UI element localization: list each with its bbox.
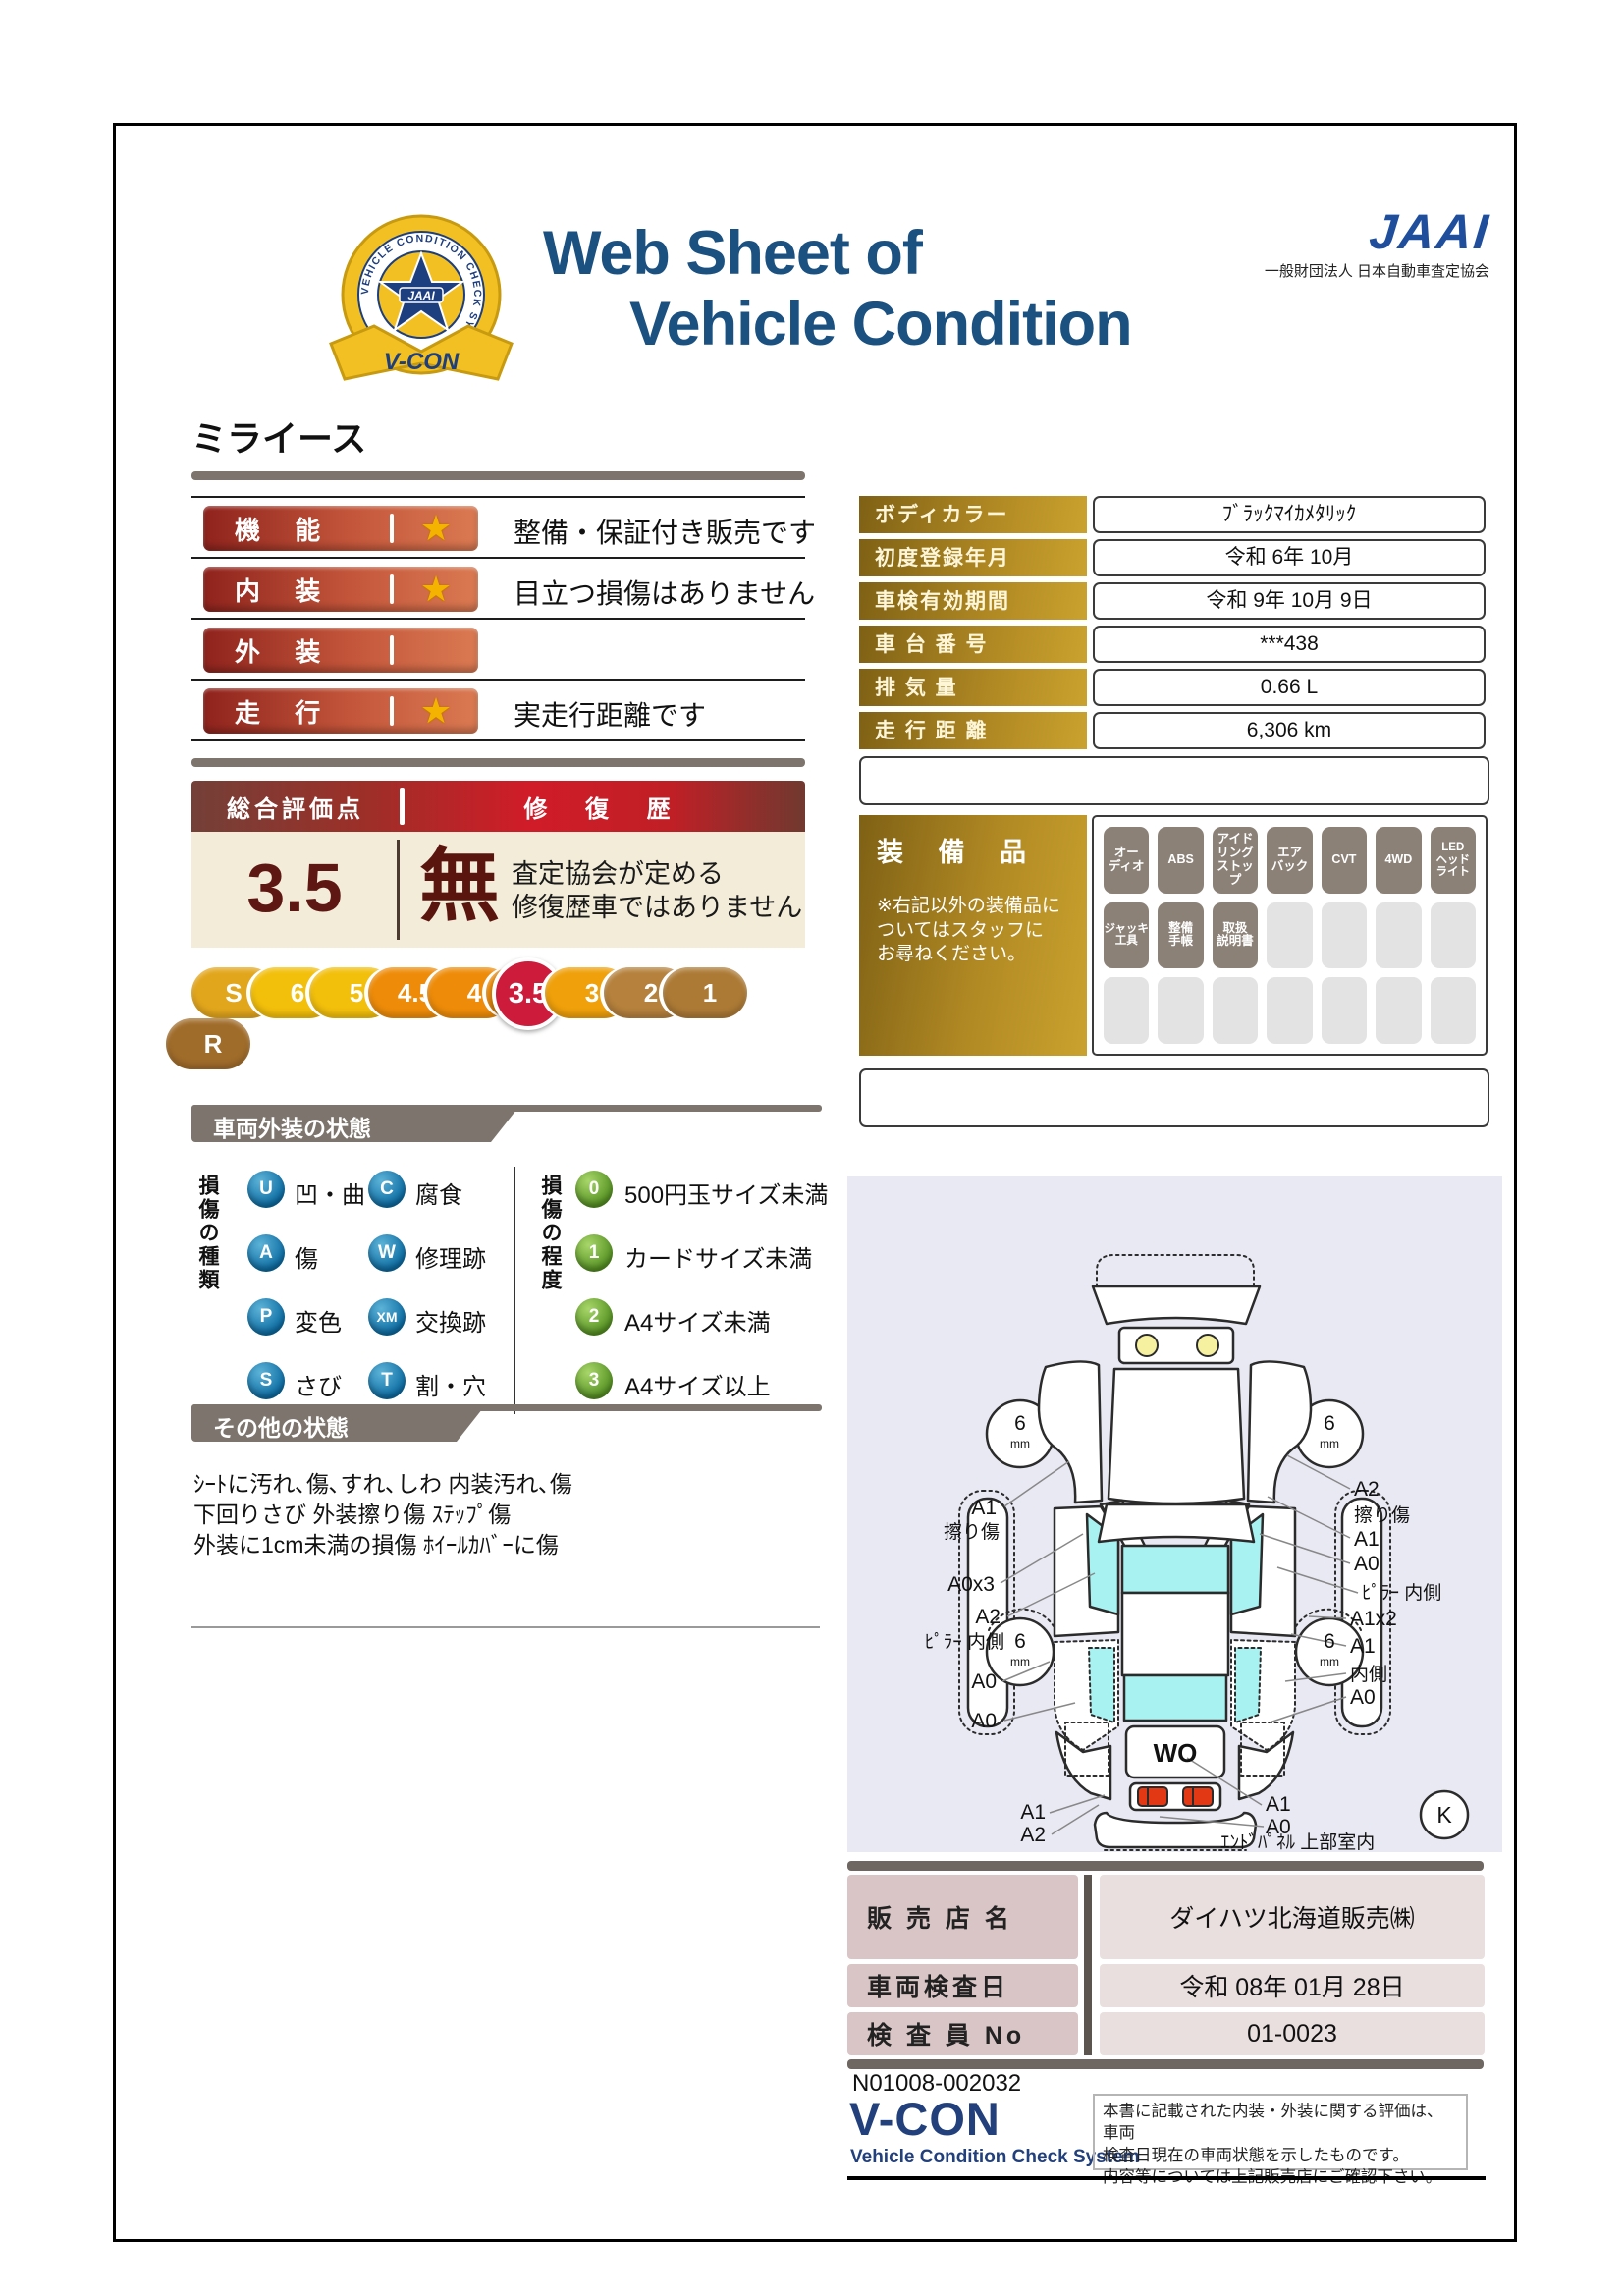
inspector-no-value: 01-0023 (1100, 2012, 1485, 2055)
equipment-badge-empty (1267, 977, 1312, 1044)
rating-label: 走 行 (203, 693, 390, 730)
damage-type-icon-a: A (247, 1234, 285, 1272)
damage-degree-label: A4サイズ以上 (624, 1367, 771, 1401)
spec-value: ***438 (1093, 626, 1486, 663)
legend-divider (514, 1167, 515, 1414)
vcon-logo: V-CON (849, 2092, 1001, 2146)
spec-label: ボディカラー (859, 496, 1087, 535)
equipment-badge-cvt: CVT (1322, 827, 1367, 894)
damage-degree-icon-0: 0 (575, 1171, 613, 1208)
scale-segment-label: 5 (340, 978, 363, 1009)
repair-history-title: 修 復 歴 (405, 790, 805, 824)
equipment-badge-airbag: エア バック (1267, 827, 1312, 894)
dealer-name-value: ダイハツ北海道販売㈱ (1100, 1875, 1485, 1959)
equipment-badge-empty (1213, 977, 1258, 1044)
equipment-badge-empty (1431, 902, 1476, 969)
diagram-bottom-caption: ｴﾝﾄﾞﾊﾟﾈﾙ 上部室内 (1220, 1831, 1375, 1852)
headlight-right-icon (1197, 1335, 1218, 1356)
rating-row-mileage: 走 行 ★ 実走行距離です (191, 679, 805, 741)
spec-empty-box (859, 756, 1489, 805)
rear-glass (1124, 1675, 1226, 1721)
damage-label: A1 (1354, 1528, 1380, 1551)
scale-segment: R (166, 1018, 250, 1069)
damage-label: 擦り傷 (944, 1521, 1000, 1543)
damage-label: A0 (1350, 1686, 1376, 1709)
title-line2: Vehicle Condition (543, 289, 1132, 359)
damage-type-icon-w: W (368, 1234, 406, 1272)
equipment-badge-empty (1322, 977, 1367, 1044)
spec-row-bodycolor: ボディカラー ﾌﾞﾗｯｸﾏｲｶﾒﾀﾘｯｸ (859, 496, 1488, 535)
damage-type-label: 交換跡 (415, 1303, 486, 1338)
headlight-left-icon (1136, 1335, 1158, 1356)
equipment-badge-empty (1104, 977, 1149, 1044)
other-condition-text: ｼｰﾄに汚れ､傷､すれ､しわ 内装汚れ､傷 下回りさび 外装擦り傷 ｽﾃｯﾌﾟ傷… (193, 1469, 572, 1560)
damage-type-label: さび (295, 1367, 342, 1401)
exterior-section-title: 車両外装の状態 (191, 1105, 520, 1142)
rating-row-interior: 内 装 ★ 目立つ損傷はありません (191, 557, 805, 620)
damage-type-label: 修理跡 (415, 1239, 486, 1274)
star-icon: ★ (394, 690, 478, 732)
equipment-note: ※右記以外の装備品に ついてはスタッフに お尋ねください。 (877, 895, 1087, 967)
equipment-badge-empty (1376, 902, 1421, 969)
damage-label: A0 (971, 1710, 997, 1732)
spec-row-first-registration: 初度登録年月 令和 6年 10月 (859, 539, 1488, 578)
star-icon: ★ (394, 569, 478, 610)
damage-type-axis: 損傷の種類 (192, 1175, 222, 1292)
badge-ribbon-text: V-CON (384, 349, 460, 375)
page-title: Web Sheet of Vehicle Condition (543, 218, 1132, 359)
star-icon: ★ (394, 508, 478, 549)
scale-segment-label: 1 (693, 978, 717, 1009)
damage-label: 擦り傷 (1354, 1504, 1410, 1526)
rating-label: 機 能 (203, 511, 390, 547)
equipment-title: 装 備 品 (877, 831, 1087, 869)
jaai-logo: JAAI (1200, 206, 1491, 257)
scale-segment-label: 6 (281, 978, 304, 1009)
damage-type-label: 傷 (295, 1239, 318, 1274)
footer-divider (847, 2176, 1486, 2180)
dealer-table-top-bar (847, 1861, 1484, 1871)
tread-depth-value: 6 (1324, 1630, 1335, 1653)
divider-bar-top (191, 471, 805, 480)
dealer-table-bottom-bar (847, 2059, 1484, 2069)
spec-row-chassis-number: 車 台 番 号 ***438 (859, 626, 1488, 665)
repair-status: 無 (419, 832, 500, 948)
damage-label: A1 (1020, 1801, 1046, 1824)
spec-value: 令和 9年 10月 9日 (1093, 582, 1486, 620)
damage-label: A2 (975, 1606, 1001, 1628)
badge-center-text: JAAI (407, 289, 435, 302)
equipment-badge-4wd: 4WD (1376, 827, 1421, 894)
rear-panel-code: WO (1154, 1738, 1198, 1768)
damage-type-label: 変色 (295, 1303, 342, 1338)
rating-bar: 内 装 ★ (203, 567, 478, 612)
rating-bottom-line (191, 739, 805, 741)
damage-type-label: 腐食 (415, 1175, 462, 1210)
scale-segment-label: 2 (634, 978, 658, 1009)
rating-bar: 走 行 ★ (203, 688, 478, 734)
scale-segment-label: S (225, 978, 242, 1009)
damage-degree-label: A4サイズ未満 (624, 1303, 771, 1338)
title-line1: Web Sheet of (543, 219, 922, 288)
spec-row-inspection-valid: 車検有効期間 令和 9年 10月 9日 (859, 582, 1488, 622)
damage-type-icon-c: C (368, 1171, 406, 1208)
damage-label: ﾋﾟﾗｰ 内側 (925, 1631, 1004, 1653)
inspection-date-value: 令和 08年 01月 28日 (1100, 1964, 1485, 2007)
tail-light-left-icon (1138, 1787, 1167, 1806)
spec-label: 車 台 番 号 (859, 626, 1087, 665)
tread-depth-unit: mm (1010, 1655, 1030, 1668)
repair-note: 査定協会が定める 修復歴車ではありません (512, 857, 802, 924)
tread-depth-value: 6 (1014, 1412, 1026, 1435)
score-scale: S 6 5 4.5 4 3.5 3 2 1 R (191, 967, 805, 1018)
equipment-badge-led: LED ヘッド ライト (1431, 827, 1476, 894)
equipment-badge-empty (1158, 977, 1203, 1044)
scale-segment: 1 (663, 967, 747, 1018)
equipment-badge-audio: オー ディオ (1104, 827, 1149, 894)
front-glass (1122, 1546, 1228, 1593)
damage-type-icon-xm: XM (368, 1298, 406, 1336)
other-section-title: その他の状態 (191, 1404, 486, 1442)
equipment-badge-empty (1431, 977, 1476, 1044)
equipment-badge-manual: 取扱 説明書 (1213, 902, 1258, 969)
vehicle-name: ミライース (191, 410, 366, 462)
tread-depth-value: 6 (1324, 1412, 1335, 1435)
equipment-badge-empty (1267, 902, 1312, 969)
damage-degree-icon-1: 1 (575, 1234, 613, 1272)
damage-label: A1 (1350, 1635, 1376, 1658)
equipment-empty-box (859, 1068, 1489, 1127)
equipment-badge-abs: ABS (1158, 827, 1203, 894)
damage-degree-icon-3: 3 (575, 1362, 613, 1399)
damage-label: A0 (1354, 1553, 1380, 1575)
equipment-badge-service-book: 整備 手帳 (1158, 902, 1203, 969)
damage-type-icon-s: S (247, 1362, 285, 1399)
tread-depth-unit: mm (1010, 1437, 1030, 1450)
spec-label: 走 行 距 離 (859, 712, 1087, 751)
dealer-name-label: 販 売 店 名 (847, 1875, 1078, 1959)
repair-note-line1: 査定協会が定める (512, 857, 802, 891)
divider-bar-ratings (191, 758, 805, 767)
windshield-panel (1099, 1504, 1254, 1542)
rating-note: 目立つ損傷はありません (514, 573, 815, 612)
repair-note-line2: 修復歴車ではありません (512, 891, 802, 924)
equipment-badge-empty (1376, 977, 1421, 1044)
equipment-badge-empty (1322, 902, 1367, 969)
jaai-subtitle: 一般財団法人 日本自動車査定協会 (1203, 260, 1489, 281)
dealer-table-divider (1084, 1875, 1092, 2055)
damage-label: A0 (971, 1670, 997, 1693)
damage-type-icon-t: T (368, 1362, 406, 1399)
equipment-panel: 装 備 品 ※右記以外の装備品に ついてはスタッフに お尋ねください。 (859, 815, 1087, 1056)
rating-bar: 外 装 (203, 628, 478, 673)
inspector-no-label: 検 査 員 No (847, 2012, 1078, 2055)
scale-segment-label: 3 (575, 978, 599, 1009)
damage-type-icon-p: P (247, 1298, 285, 1336)
damage-label: A0x3 (947, 1573, 995, 1596)
overall-body-divider (397, 840, 400, 940)
rating-note: 整備・保証付き販売です (514, 512, 816, 551)
spec-value: 0.66 L (1093, 669, 1486, 706)
spec-label: 排 気 量 (859, 669, 1087, 708)
tail-light-right-icon (1183, 1787, 1213, 1806)
rating-row-exterior: 外 装 (191, 618, 805, 681)
damage-label: A1 (1266, 1793, 1291, 1816)
equipment-badge-jack-tools: ジャッキ 工具 (1104, 902, 1149, 969)
spec-value: ﾌﾞﾗｯｸﾏｲｶﾒﾀﾘｯｸ (1093, 496, 1486, 533)
damage-degree-axis: 損傷の程度 (535, 1175, 565, 1292)
spec-row-mileage: 走 行 距 離 6,306 km (859, 712, 1488, 751)
disclaimer-text: 本書に記載された内装・外装に関する評価は、車両 検査日現在の車両状態を示したもの… (1093, 2094, 1468, 2170)
damage-degree-icon-2: 2 (575, 1298, 613, 1336)
damage-label: A2 (1354, 1478, 1380, 1501)
rating-label: 内 装 (203, 572, 390, 608)
damage-type-icon-u: U (247, 1171, 285, 1208)
tread-depth-unit: mm (1320, 1655, 1339, 1668)
tread-depth-value: 6 (1014, 1630, 1026, 1653)
spec-label: 初度登録年月 (859, 539, 1087, 578)
overall-score-title: 総合評価点 (191, 790, 400, 824)
damage-degree-label: カードサイズ未満 (624, 1239, 812, 1274)
rating-divider (390, 635, 394, 665)
vcon-badge-icon: VEHICLE CONDITION CHECK SYSTEM JAAI V-CO… (317, 204, 525, 406)
overall-score: 3.5 (191, 832, 398, 948)
corner-code: K (1436, 1802, 1452, 1828)
damage-type-label: 割・穴 (415, 1367, 486, 1401)
spec-value: 令和 6年 10月 (1093, 539, 1486, 576)
rating-bar: 機 能 ★ (203, 506, 478, 551)
spec-label: 車検有効期間 (859, 582, 1087, 622)
rating-label: 外 装 (203, 632, 390, 669)
roof-panel (1122, 1593, 1228, 1675)
rating-row-function: 機 能 ★ 整備・保証付き販売です (191, 496, 805, 559)
damage-label: A1 (971, 1497, 997, 1519)
overall-header: 総合評価点 修 復 歴 (191, 781, 805, 832)
front-cowl-panel (1093, 1286, 1260, 1324)
damage-label: A1x2 (1350, 1608, 1397, 1630)
spec-value: 6,306 km (1093, 712, 1486, 749)
equipment-badge-idling-stop: アイド リング ストップ (1213, 827, 1258, 894)
inspection-date-label: 車両検査日 (847, 1964, 1078, 2007)
damage-degree-label: 500円玉サイズ未満 (624, 1175, 828, 1210)
scale-segment-label: 4 (458, 978, 481, 1009)
jaai-logo-block: JAAI 一般財団法人 日本自動車査定協会 (1203, 206, 1489, 281)
vehicle-condition-sheet: VEHICLE CONDITION CHECK SYSTEM JAAI V-CO… (0, 0, 1623, 2296)
spec-row-displacement: 排 気 量 0.66 L (859, 669, 1488, 708)
damage-diagram-panel: 6 mm 6 mm 6 mm 6 mm WO K A1 擦り傷 A0x3 A2 … (847, 1176, 1502, 1852)
damage-label: 内側 (1350, 1664, 1387, 1685)
scale-segment-label: R (194, 1029, 223, 1060)
rating-note: 実走行距離です (514, 694, 706, 734)
damage-type-label: 凹・曲 (295, 1175, 365, 1210)
car-foldout-diagram: 6 mm 6 mm 6 mm 6 mm WO K A1 擦り傷 A0x3 A2 … (847, 1176, 1502, 1852)
front-bumper-dotted (1097, 1255, 1254, 1286)
hood-panel (1109, 1369, 1244, 1503)
left-column-divider (191, 1626, 820, 1628)
damage-label: A2 (1020, 1824, 1046, 1846)
equipment-grid: オー ディオ ABS アイド リング ストップ エア バック CVT 4WD L… (1092, 815, 1488, 1056)
overall-body: 3.5 無 査定協会が定める 修復歴車ではありません (191, 832, 805, 948)
tread-depth-unit: mm (1320, 1437, 1339, 1450)
damage-label: ﾋﾟﾗｰ 内側 (1362, 1582, 1441, 1604)
